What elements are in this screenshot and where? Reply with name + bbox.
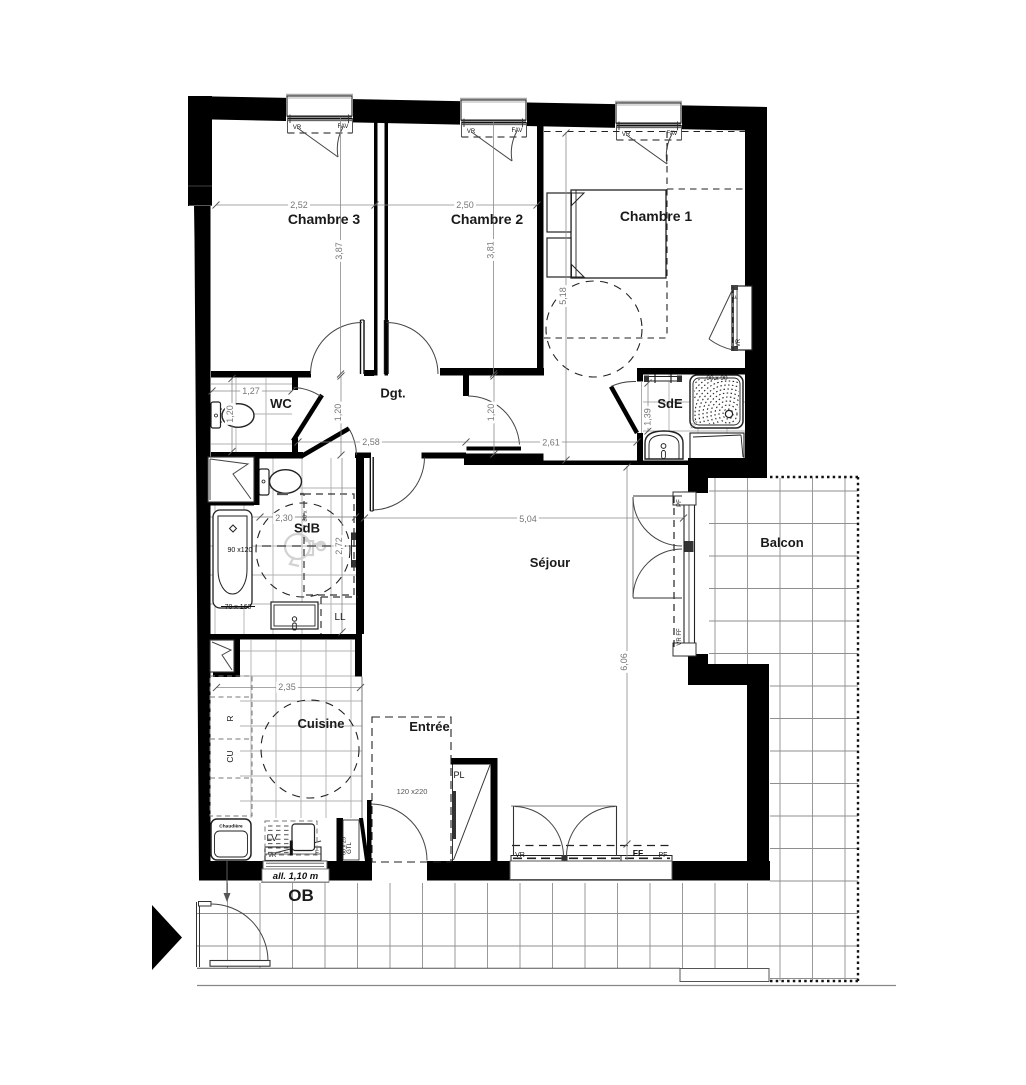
svg-text:VR: VR bbox=[293, 125, 302, 131]
svg-text:Chambre 2: Chambre 2 bbox=[451, 211, 524, 227]
svg-text:1,20: 1,20 bbox=[225, 405, 235, 423]
svg-text:PL: PL bbox=[453, 770, 464, 780]
svg-text:VR: VR bbox=[515, 852, 525, 859]
svg-text:GTL: GTL bbox=[347, 842, 353, 854]
svg-text:1,27: 1,27 bbox=[242, 386, 260, 396]
svg-text:F: F bbox=[734, 295, 740, 299]
svg-text:VR: VR bbox=[622, 132, 631, 138]
svg-text:VR: VR bbox=[467, 129, 476, 135]
svg-text:60 x 25: 60 x 25 bbox=[342, 837, 348, 855]
svg-text:Balcon: Balcon bbox=[760, 535, 803, 550]
svg-text:SdE: SdE bbox=[657, 396, 683, 411]
svg-text:90 x 90: 90 x 90 bbox=[706, 375, 728, 382]
svg-text:Chaudière: Chaudière bbox=[219, 824, 243, 830]
svg-text:3,87: 3,87 bbox=[334, 242, 344, 260]
svg-text:1,39: 1,39 bbox=[643, 408, 653, 426]
svg-text:5,04: 5,04 bbox=[519, 514, 537, 524]
svg-text:90 x120: 90 x120 bbox=[228, 547, 253, 554]
svg-text:Chambre 1: Chambre 1 bbox=[620, 208, 693, 224]
svg-text:VR: VR bbox=[736, 338, 742, 347]
svg-text:F: F bbox=[315, 851, 319, 857]
svg-text:WC: WC bbox=[270, 396, 292, 411]
svg-text:all. 1,10 m: all. 1,10 m bbox=[273, 871, 319, 882]
svg-text:2,58: 2,58 bbox=[362, 437, 380, 447]
svg-text:LL: LL bbox=[334, 612, 346, 623]
svg-text:1,20: 1,20 bbox=[333, 404, 343, 422]
svg-text:FF: FF bbox=[633, 848, 643, 858]
svg-text:VR FF: VR FF bbox=[677, 628, 683, 646]
svg-text:SdB: SdB bbox=[294, 521, 320, 536]
svg-text:2,30: 2,30 bbox=[275, 513, 293, 523]
svg-text:VR: VR bbox=[268, 853, 277, 859]
svg-text:2,61: 2,61 bbox=[542, 438, 560, 448]
svg-text:2,35: 2,35 bbox=[278, 682, 296, 692]
svg-text:LV: LV bbox=[267, 833, 279, 844]
svg-text:Dgt.: Dgt. bbox=[380, 386, 405, 401]
svg-text:OB: OB bbox=[288, 886, 314, 905]
svg-text:FAV: FAV bbox=[338, 124, 349, 130]
svg-text:5,18: 5,18 bbox=[558, 287, 568, 305]
svg-text:PF: PF bbox=[659, 852, 668, 859]
svg-text:2,50: 2,50 bbox=[456, 200, 474, 210]
svg-text:2,52: 2,52 bbox=[290, 200, 308, 210]
svg-text:1,20: 1,20 bbox=[486, 404, 496, 422]
svg-text:120 x220: 120 x220 bbox=[397, 787, 428, 796]
svg-text:2,72: 2,72 bbox=[334, 537, 344, 555]
svg-text:R: R bbox=[225, 715, 235, 721]
svg-text:Chambre 3: Chambre 3 bbox=[288, 211, 361, 227]
svg-text:Entrée: Entrée bbox=[409, 719, 449, 734]
svg-text:70 x 160: 70 x 160 bbox=[225, 604, 252, 611]
svg-text:PF: PF bbox=[677, 499, 683, 507]
svg-text:3,81: 3,81 bbox=[486, 241, 496, 259]
svg-text:CU: CU bbox=[225, 750, 235, 762]
svg-text:6,06: 6,06 bbox=[619, 653, 629, 671]
svg-text:Séjour: Séjour bbox=[530, 555, 570, 570]
svg-text:FAV: FAV bbox=[512, 128, 523, 134]
svg-text:Cuisine: Cuisine bbox=[298, 716, 345, 731]
